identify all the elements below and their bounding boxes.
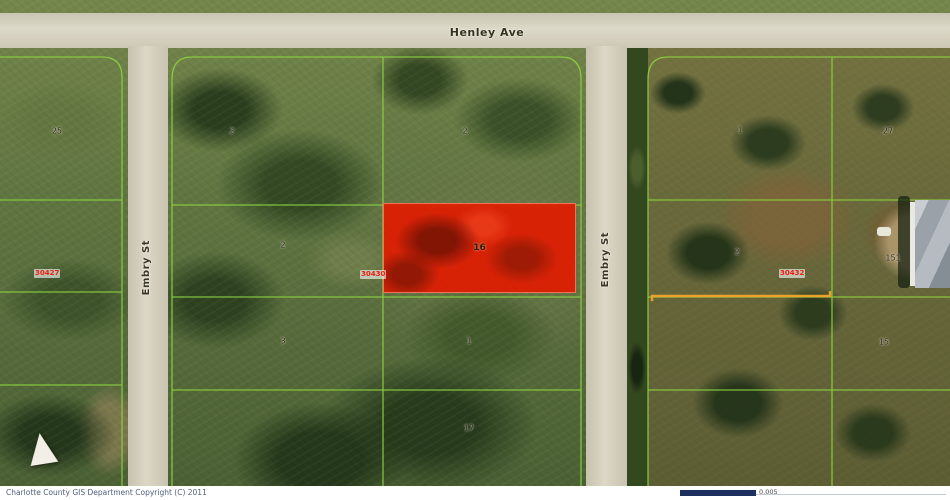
parcel-number-label: 2 bbox=[734, 248, 739, 257]
parcel-number-label: 2 bbox=[229, 127, 234, 136]
parcel-number-label: 151 bbox=[885, 254, 900, 263]
parcel-number-label: 2 bbox=[462, 127, 467, 136]
parcel-number-label: 25 bbox=[52, 127, 62, 136]
driveway-patch bbox=[877, 227, 891, 236]
parcel-number-label: 15 bbox=[879, 338, 889, 347]
street-label-right: Embry St bbox=[600, 232, 611, 287]
lot-id-label: 30427 bbox=[34, 269, 60, 278]
highlighted-parcel-number: 16 bbox=[473, 243, 486, 253]
gis-map-view[interactable]: 16 Henley Ave Embry St Embry St 25221272… bbox=[0, 0, 950, 500]
tree-shadow bbox=[898, 196, 910, 288]
scale-bar-label: 0.005 bbox=[759, 488, 778, 496]
north-arrow-icon bbox=[26, 431, 59, 466]
house-roof bbox=[915, 200, 950, 288]
parcel-number-label: 1 bbox=[466, 337, 471, 346]
scale-bar-tail bbox=[756, 494, 946, 495]
parcel-number-label: 3 bbox=[280, 337, 285, 346]
highlighted-parcel[interactable]: 16 bbox=[383, 203, 576, 293]
parcel-number-label: 2 bbox=[280, 241, 285, 250]
parcel-number-label: 27 bbox=[883, 127, 893, 136]
footer-bar: Charlotte County GIS Department Copyrigh… bbox=[0, 486, 950, 500]
street-label-left: Embry St bbox=[141, 240, 152, 295]
scale-bar bbox=[680, 490, 756, 496]
copyright-text: Charlotte County GIS Department Copyrigh… bbox=[6, 488, 207, 497]
lot-id-label: 30432 bbox=[779, 269, 805, 278]
street-label-henley-ave: Henley Ave bbox=[432, 26, 542, 39]
lot-id-label: 30430 bbox=[360, 270, 386, 279]
parcel-number-label: 17 bbox=[464, 424, 474, 433]
parcel-number-label: 1 bbox=[737, 126, 742, 135]
road-shoulder-vegetation bbox=[627, 48, 648, 486]
